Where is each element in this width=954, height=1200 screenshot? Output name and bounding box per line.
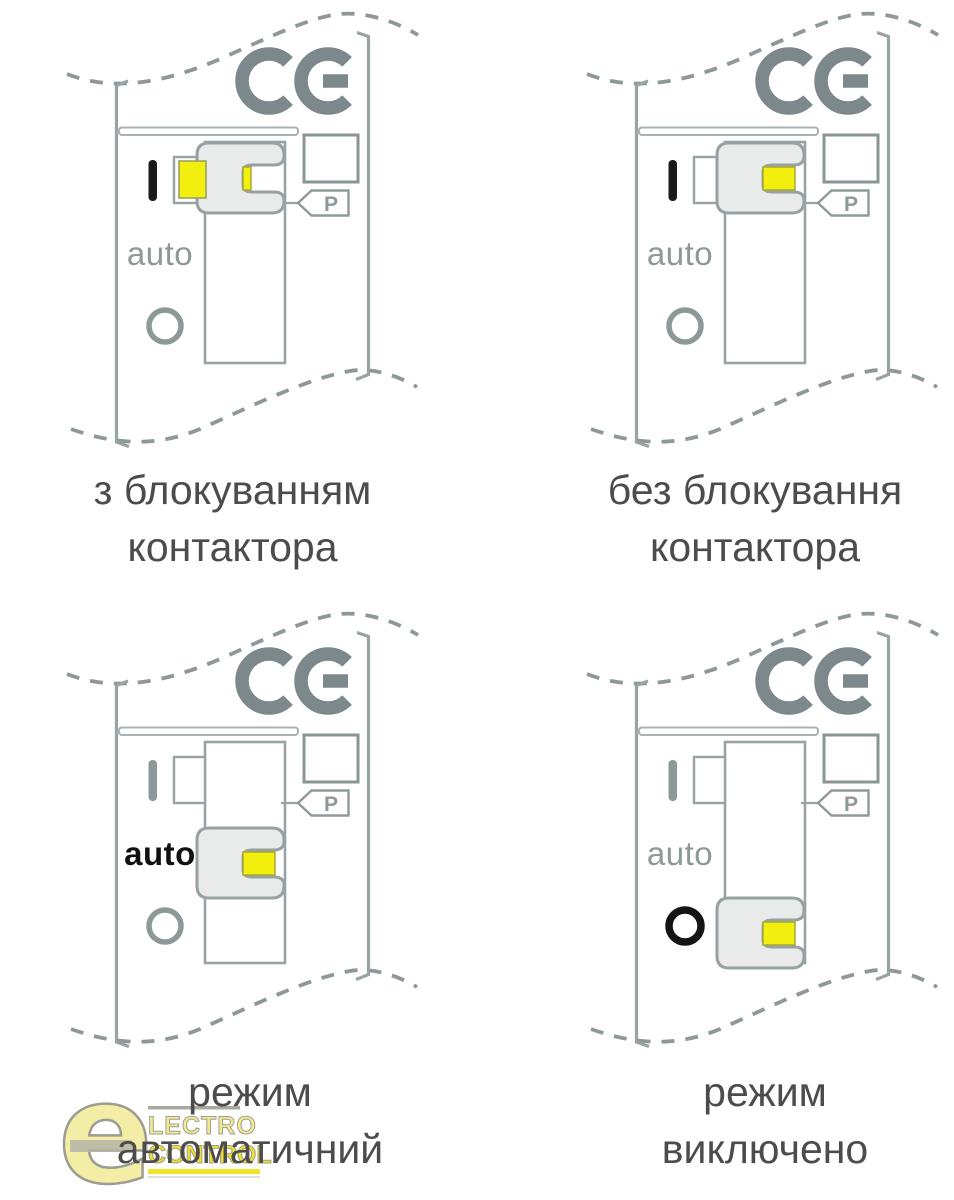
panel-without-contactor-lock: P auto: [555, 5, 954, 470]
lock-tab-sliver: [243, 167, 251, 190]
position-marking-on: [669, 160, 678, 201]
lock-tab: [763, 167, 795, 190]
parameter-tag: P: [818, 191, 869, 217]
lock-tab-extended: [179, 161, 206, 198]
position-marking-auto: auto: [127, 235, 193, 272]
svg-text:P: P: [324, 193, 338, 216]
position-marking-off: [149, 910, 181, 942]
position-marking-auto: auto: [647, 835, 713, 872]
caption-off-mode: режим виключено: [555, 1064, 954, 1178]
caption-line: без блокування: [555, 462, 954, 519]
lock-tab-slot: [174, 757, 205, 803]
panel-cutout-dashes-bottom: [591, 970, 937, 1042]
caption-line: контактора: [55, 519, 410, 576]
din-rail-strip: [639, 728, 818, 736]
schematic-drawing: P auto: [555, 5, 954, 470]
panel-with-contactor-lock: P auto: [55, 5, 475, 470]
position-marking-on: [669, 760, 678, 801]
indicator-window: [824, 735, 878, 782]
mounting-bracket-right: [356, 33, 369, 380]
svg-text:P: P: [324, 793, 338, 816]
position-marking-on: [149, 760, 158, 801]
ce-mark-icon: [762, 54, 868, 108]
position-marking-off: [149, 310, 181, 342]
position-marking-auto: auto: [124, 835, 196, 872]
caption-without-contactor-lock: без блокування контактора: [555, 462, 954, 576]
lock-tab-slot: [694, 757, 725, 803]
indicator-window: [824, 135, 878, 182]
mounting-bracket-right: [356, 633, 369, 980]
panel-cutout-dashes-bottom: [71, 970, 417, 1042]
indicator-window: [304, 735, 358, 782]
position-marking-auto: auto: [647, 235, 713, 272]
mode-slider: [197, 828, 284, 898]
svg-text:P: P: [844, 793, 858, 816]
panel-cutout-dashes-bottom: [591, 370, 937, 442]
ce-mark-icon: [242, 54, 348, 108]
parameter-tag: P: [818, 791, 869, 817]
lock-tab: [243, 852, 275, 875]
parameter-tag: P: [298, 791, 349, 817]
panel-auto-mode: P auto: [55, 605, 475, 1070]
caption-line: виключено: [555, 1121, 954, 1178]
panel-off-mode: P auto: [555, 605, 954, 1070]
caption-line: автоматичний: [60, 1121, 440, 1178]
mounting-bracket-right: [876, 33, 889, 380]
svg-text:P: P: [844, 193, 858, 216]
parameter-tag: P: [298, 191, 349, 217]
ce-mark-icon: [242, 654, 348, 708]
position-marking-off: [669, 310, 701, 342]
panel-cutout-dashes-bottom: [71, 370, 417, 442]
mode-slider: [717, 898, 804, 968]
ce-mark-icon: [762, 654, 868, 708]
position-marking-off: [669, 910, 701, 942]
caption-auto-mode: режим автоматичний: [60, 1064, 440, 1178]
mounting-bracket-right: [876, 633, 889, 980]
caption-line: з блокуванням: [55, 462, 410, 519]
mode-slider: [717, 143, 804, 213]
caption-line: режим: [60, 1064, 440, 1121]
caption-with-contactor-lock: з блокуванням контактора: [55, 462, 410, 576]
caption-line: контактора: [555, 519, 954, 576]
schematic-drawing: P auto: [55, 5, 475, 470]
lock-tab: [763, 922, 795, 945]
caption-line: режим: [555, 1064, 954, 1121]
schematic-drawing: P auto: [555, 605, 954, 1070]
din-rail-strip: [639, 128, 818, 136]
din-rail-strip: [119, 128, 298, 136]
position-marking-on: [149, 160, 158, 201]
schematic-drawing: P auto: [55, 605, 475, 1070]
din-rail-strip: [119, 728, 298, 736]
indicator-window: [304, 135, 358, 182]
